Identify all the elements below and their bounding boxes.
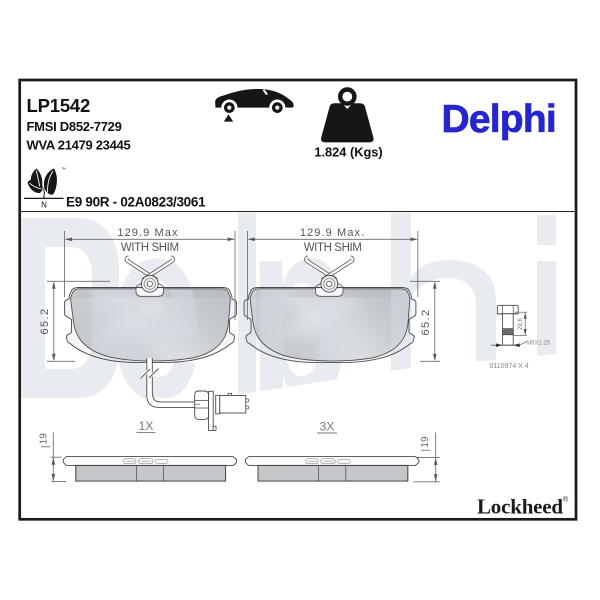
svg-text:1.824 (Kgs): 1.824 (Kgs) [314, 144, 382, 159]
svg-text:0110974 X 4: 0110974 X 4 [490, 363, 529, 370]
svg-text:N: N [41, 201, 47, 210]
svg-text:®: ® [563, 495, 569, 504]
svg-text:19: 19 [39, 433, 50, 445]
svg-text:M8X1.25: M8X1.25 [526, 340, 551, 346]
svg-text:65.2: 65.2 [39, 307, 51, 334]
svg-text:129.9 Max.: 129.9 Max. [300, 227, 365, 239]
svg-text:29.6: 29.6 [518, 318, 524, 330]
svg-text:WVA 21479 23445: WVA 21479 23445 [27, 138, 131, 153]
svg-text:129.9 Max: 129.9 Max [117, 227, 178, 239]
svg-text:LP1542: LP1542 [27, 95, 91, 116]
svg-text:Lockheed: Lockheed [477, 494, 563, 518]
svg-text:Delphi: Delphi [442, 98, 556, 141]
svg-text:19: 19 [420, 436, 431, 448]
svg-text:65.2: 65.2 [420, 308, 432, 335]
svg-text:WITH SHIM: WITH SHIM [121, 242, 179, 254]
svg-text:1X: 1X [139, 419, 154, 433]
svg-text:E9 90R - 02A0823/3061: E9 90R - 02A0823/3061 [66, 194, 206, 209]
svg-text:WITH SHIM: WITH SHIM [304, 242, 362, 254]
svg-text:3X: 3X [320, 420, 335, 434]
svg-text:FMSI D852-7729: FMSI D852-7729 [27, 119, 122, 134]
svg-text:™: ™ [61, 167, 66, 173]
